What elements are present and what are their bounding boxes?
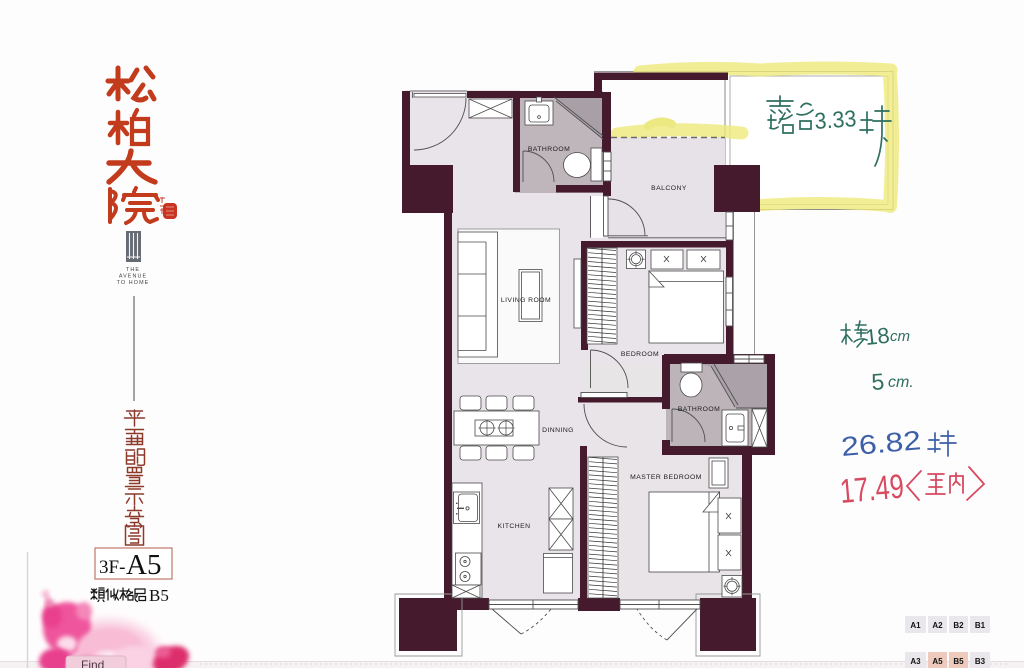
- svg-text:THE: THE: [126, 267, 140, 273]
- svg-text:AVENUE: AVENUE: [119, 274, 147, 280]
- svg-text:A3: A3: [910, 657, 921, 666]
- svg-text:TO HOME: TO HOME: [117, 280, 150, 286]
- svg-text:cm: cm: [890, 328, 910, 345]
- svg-text:MASTER BEDROOM: MASTER BEDROOM: [630, 474, 702, 481]
- svg-text:BATHROOM: BATHROOM: [678, 406, 720, 413]
- svg-text:3F-: 3F-: [99, 557, 125, 578]
- svg-text:DINNING: DINNING: [542, 427, 574, 434]
- svg-text:Find: Find: [81, 658, 104, 668]
- svg-text:B2: B2: [953, 621, 964, 630]
- svg-text:BEDROOM: BEDROOM: [621, 351, 659, 358]
- svg-text:3.33: 3.33: [814, 105, 858, 134]
- svg-text:A5: A5: [932, 657, 943, 666]
- svg-text:B5: B5: [953, 657, 964, 666]
- svg-text:BALCONY: BALCONY: [651, 185, 687, 192]
- svg-text:B1: B1: [975, 621, 986, 630]
- svg-text:LIVING ROOM: LIVING ROOM: [501, 297, 551, 304]
- svg-text:cm.: cm.: [888, 374, 914, 391]
- svg-text:KITCHEN: KITCHEN: [498, 523, 531, 530]
- svg-text:A1: A1: [910, 621, 921, 630]
- svg-text:B5: B5: [149, 586, 169, 605]
- svg-text:17.49: 17.49: [838, 468, 905, 511]
- svg-text:26.82: 26.82: [840, 425, 922, 462]
- svg-text:18: 18: [864, 323, 891, 350]
- svg-text:A2: A2: [932, 621, 943, 630]
- svg-text:BATHROOM: BATHROOM: [528, 146, 570, 153]
- svg-text:B3: B3: [975, 657, 986, 666]
- svg-text:5: 5: [871, 368, 886, 395]
- svg-text:A5: A5: [126, 549, 161, 581]
